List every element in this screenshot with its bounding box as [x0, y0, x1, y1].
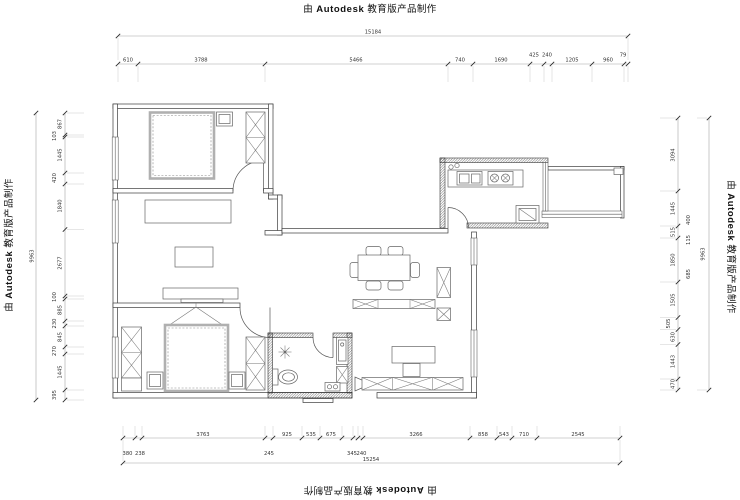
dim-top-seg-2: 5466 [349, 58, 362, 64]
dim-right-total: 9963 [701, 247, 707, 260]
dim-bottom-r1-4: 3266 [409, 432, 422, 438]
hall-cabinet-small [437, 308, 451, 321]
dim-right-seg-6: 630 [671, 332, 677, 342]
dim-right-inner-0: 400 [686, 215, 692, 225]
nightstand-second-right [229, 372, 245, 389]
dim-left-seg-1: 103 [52, 131, 58, 141]
dim-top-seg-9: 79 [620, 53, 627, 59]
dim-left-seg-0: 867 [58, 119, 64, 129]
dim-right-seg-1: 1445 [671, 202, 677, 215]
window-dining-right [471, 238, 477, 265]
bed-second [165, 303, 228, 391]
window-bedroom1-left [112, 137, 118, 180]
dim-left-seg-11: 1445 [58, 365, 64, 378]
kitchen-sink [457, 172, 482, 186]
door-bedroom2 [240, 308, 270, 338]
dim-left-seg-7: 885 [58, 305, 64, 315]
stove [488, 172, 513, 186]
fridge [516, 206, 539, 224]
floor-plan-canvas: 15184 610 3788 5466 740 1690 425 240 120… [0, 0, 740, 500]
dim-left-seg-10: 270 [52, 346, 58, 356]
window-balcony-bottom [542, 211, 622, 218]
window-kitchen-balcony [543, 163, 548, 212]
wardrobe-master [246, 112, 265, 163]
dim-top-total: 15184 [365, 30, 382, 36]
window-living-right [471, 330, 477, 377]
dim-bottom-total: 15254 [363, 457, 380, 463]
door-bedroom1 [233, 161, 264, 192]
dim-bottom-r1-7: 710 [519, 432, 529, 438]
tv-cabinet-study [163, 288, 238, 303]
dim-left-total: 9963 [30, 249, 36, 262]
nightstand-second-left [147, 372, 163, 389]
door-bathroom [313, 338, 333, 358]
dim-top-seg-8: 960 [603, 58, 613, 64]
dining-table [350, 247, 420, 291]
coffee-table [175, 247, 213, 267]
dim-left-seg-12: 395 [52, 390, 58, 400]
window-bedroom2-left [112, 337, 118, 378]
dim-bottom-r1-2: 535 [306, 432, 316, 438]
dim-bottom-r2-3: 345 [347, 451, 357, 457]
sideboard [353, 300, 435, 309]
dim-top-seg-3: 740 [455, 58, 465, 64]
dim-left-seg-3: 420 [52, 173, 58, 183]
bathroom-vanity [337, 338, 349, 365]
hall-cabinet-tall [437, 268, 451, 298]
dim-left-seg-5: 2677 [58, 256, 64, 269]
wardrobe-second-left [122, 327, 142, 391]
nightstand-master [217, 112, 233, 126]
dim-right-seg-3: 1850 [671, 253, 677, 266]
bathroom-sink [325, 383, 340, 392]
dim-bottom-r1-5: 858 [478, 432, 488, 438]
dim-left-seg-8: 230 [52, 319, 58, 329]
dim-right-seg-2: 515 [671, 227, 677, 237]
dim-left-seg-9: 845 [58, 332, 64, 342]
dim-right-seg-4: 1505 [671, 293, 677, 306]
dim-right-seg-7: 1443 [671, 355, 677, 368]
dim-left-seg-4: 1840 [58, 199, 64, 212]
dim-left-seg-2: 1445 [58, 148, 64, 161]
balcony-unit [614, 168, 623, 175]
furniture [122, 112, 624, 391]
dim-right-seg-5: 505 [666, 319, 672, 329]
study-desk [145, 200, 231, 223]
washing-machine [337, 367, 349, 384]
dim-right-inner-1: 115 [686, 235, 692, 245]
dim-top-seg-7: 1205 [565, 58, 578, 64]
toilet [273, 369, 298, 385]
dim-top-seg-6: 240 [542, 53, 552, 59]
bed-master [150, 113, 214, 179]
door-kitchen [448, 208, 469, 229]
dim-left-seg-6: 100 [52, 292, 58, 302]
dim-right-seg-8: 470 [671, 379, 677, 389]
dim-bottom-r2-1: 238 [135, 451, 145, 457]
cad-drawing-page: 由 Autodesk 教育版产品制作 由 Autodesk 教育版产品制作 由 … [0, 0, 740, 500]
dim-bottom-r2-2: 245 [264, 451, 274, 457]
dim-right-seg-0: 3094 [671, 148, 677, 162]
dim-bottom-r1-1: 925 [282, 432, 292, 438]
shower-head-icon [279, 346, 292, 359]
dim-top-seg-0: 610 [123, 58, 133, 64]
dim-bottom-r2-4: 240 [357, 451, 367, 457]
dim-top-seg-4: 1690 [494, 58, 507, 64]
dim-bottom-r1-3: 675 [326, 432, 336, 438]
tv-cabinet-living [362, 378, 463, 391]
dim-top-seg-1: 3788 [194, 58, 207, 64]
window-study-left [112, 200, 118, 243]
dim-bottom-r2-0: 380 [123, 451, 133, 457]
tv [392, 347, 435, 377]
dim-bottom-r1-0: 3763 [196, 432, 209, 438]
wardrobe-second-right [246, 337, 265, 390]
dim-right-inner-2: 685 [686, 269, 692, 279]
dim-bottom-r1-6: 543 [499, 432, 509, 438]
dim-bottom-r1-8: 2545 [571, 432, 584, 438]
dim-top-seg-5: 425 [529, 53, 539, 59]
